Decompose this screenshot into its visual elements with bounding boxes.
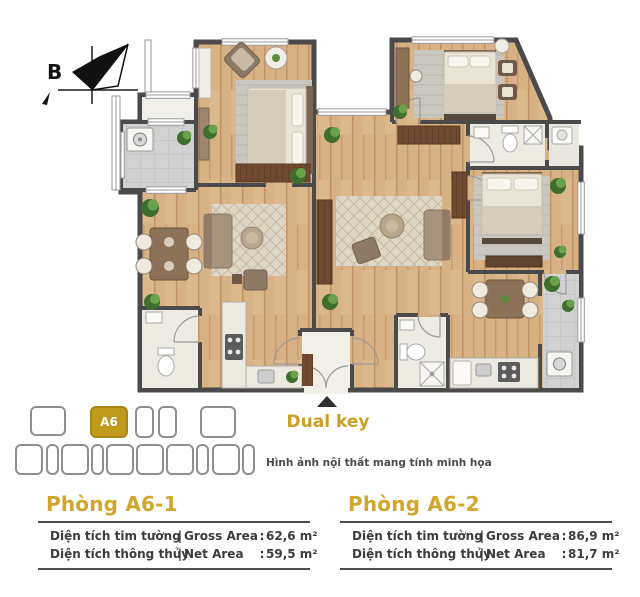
area-label-en: Net Area (184, 546, 258, 562)
dual-key-label: Dual key (282, 412, 374, 432)
compass-north-label: B (47, 60, 62, 84)
disclaimer-text: Hình ảnh nội thất mang tính minh họa (266, 457, 492, 469)
gross-area-row: Diện tích tim tường | Gross Area : 86,9 … (352, 527, 612, 545)
area-value: 81,7 m² (568, 546, 620, 562)
key-plan-unit-cell (15, 444, 43, 475)
key-plan: A6 (15, 406, 257, 478)
net-area-row: Diện tích thông thủy | Net Area : 59,5 m… (50, 545, 310, 563)
entrance-marker-icon (317, 396, 337, 407)
area-value: 62,6 m² (266, 528, 318, 544)
area-table: Diện tích tim tường | Gross Area : 86,9 … (340, 521, 612, 570)
key-plan-unit-cell (242, 444, 255, 475)
area-label-vi: Diện tích thông thủy (352, 546, 478, 562)
key-plan-unit-cell (135, 406, 154, 438)
key-plan-unit-cell (212, 444, 240, 475)
net-area-row: Diện tích thông thủy | Net Area : 81,7 m… (352, 545, 612, 563)
separator: | (176, 528, 184, 544)
key-plan-unit-cell (196, 444, 209, 475)
area-value: 59,5 m² (266, 546, 318, 562)
area-label-vi: Diện tích thông thủy (50, 546, 176, 562)
key-plan-unit-cell (158, 406, 177, 438)
area-value: 86,9 m² (568, 528, 620, 544)
key-plan-unit-cell (46, 444, 59, 475)
unit-title-a6-2: Phòng A6-2 (348, 492, 612, 516)
separator: | (478, 528, 486, 544)
key-plan-unit-cell (136, 444, 164, 475)
key-plan-unit-cell (30, 406, 66, 436)
unit-a6-1-info: Phòng A6-1 Diện tích tim tường | Gross A… (38, 492, 310, 570)
key-plan-unit-cell-a6: A6 (90, 406, 128, 438)
key-plan-unit-cell (200, 406, 236, 438)
colon: : (560, 528, 568, 544)
gross-area-row: Diện tích tim tường | Gross Area : 62,6 … (50, 527, 310, 545)
lobby-cabinet (302, 354, 313, 386)
unit-title-a6-1: Phòng A6-1 (46, 492, 310, 516)
key-plan-unit-cell (91, 444, 104, 475)
floor-plan-svg (0, 0, 640, 412)
area-label-vi: Diện tích tim tường (50, 528, 176, 544)
area-label-en: Net Area (486, 546, 560, 562)
colon: : (258, 528, 266, 544)
area-label-vi: Diện tích tim tường (352, 528, 478, 544)
unit-a6-2-info: Phòng A6-2 Diện tích tim tường | Gross A… (340, 492, 612, 570)
floor-plan (0, 0, 640, 412)
key-plan-unit-cell (166, 444, 194, 475)
area-label-en: Gross Area (486, 528, 560, 544)
separator: | (176, 546, 184, 562)
separator: | (478, 546, 486, 562)
key-plan-unit-cell (106, 444, 134, 475)
colon: : (258, 546, 266, 562)
area-table: Diện tích tim tường | Gross Area : 62,6 … (38, 521, 310, 570)
key-plan-unit-cell (61, 444, 89, 475)
area-label-en: Gross Area (184, 528, 258, 544)
colon: : (560, 546, 568, 562)
